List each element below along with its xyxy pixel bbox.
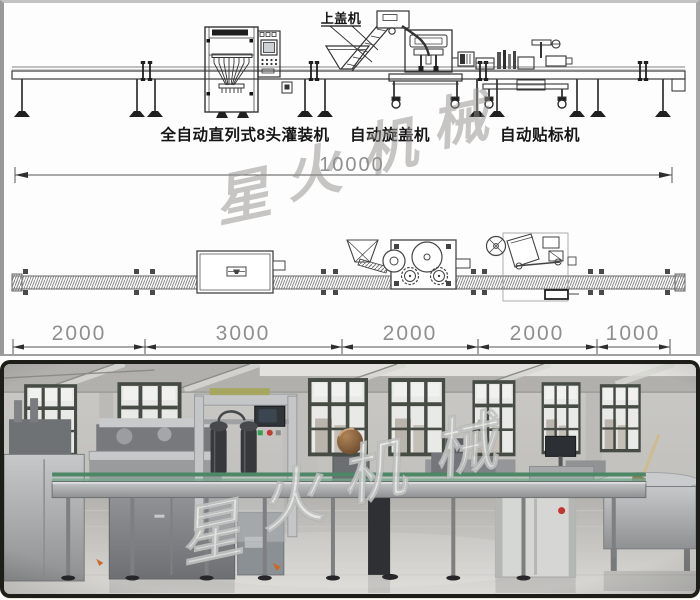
dim-segment-label: 2000 xyxy=(510,322,565,345)
side-view-drawing: 上盖机 全自动直列式8头灌装机 自动旋盖机 自动贴标机 10000 xyxy=(12,11,685,183)
watermark-char: 火 xyxy=(278,135,351,209)
dimension-segments: 2000 3000 2000 2000 1000 xyxy=(13,322,670,354)
filling-machine-drawing xyxy=(205,27,280,118)
dim-segment-label: 2000 xyxy=(383,322,438,345)
dimension-total: 10000 xyxy=(15,154,672,183)
photo-frame: 星 火 机 械 xyxy=(0,360,700,598)
cap-feeder-label: 上盖机 xyxy=(321,11,362,26)
labeling-machine-label: 自动贴标机 xyxy=(500,125,580,144)
factory-photo-svg: 星 火 机 械 xyxy=(4,364,696,594)
dim-segment-label: 1000 xyxy=(606,322,661,345)
labeling-machine-drawing xyxy=(476,40,572,108)
drawing-sheet: 上盖机 全自动直列式8头灌装机 自动旋盖机 自动贴标机 10000 xyxy=(0,0,700,356)
watermark-char: 机 xyxy=(354,110,425,184)
dim-segment-label: 2000 xyxy=(52,322,107,345)
filling-machine-plan xyxy=(197,251,285,293)
watermark-char: 星 xyxy=(208,159,280,233)
top-view-drawing: 2000 3000 2000 2000 1000 xyxy=(12,233,685,354)
filling-control-panel-drawing xyxy=(258,31,280,77)
labeling-machine-plan xyxy=(487,233,580,301)
factory-photo: 星 火 机 械 xyxy=(4,364,696,594)
line-drawing-svg: 上盖机 全自动直列式8头灌装机 自动旋盖机 自动贴标机 10000 xyxy=(4,3,696,354)
filling-machine-label: 全自动直列式8头灌装机 xyxy=(159,125,329,144)
dim-segment-label: 3000 xyxy=(216,322,271,345)
conveyor-plan-drawing xyxy=(12,269,685,295)
